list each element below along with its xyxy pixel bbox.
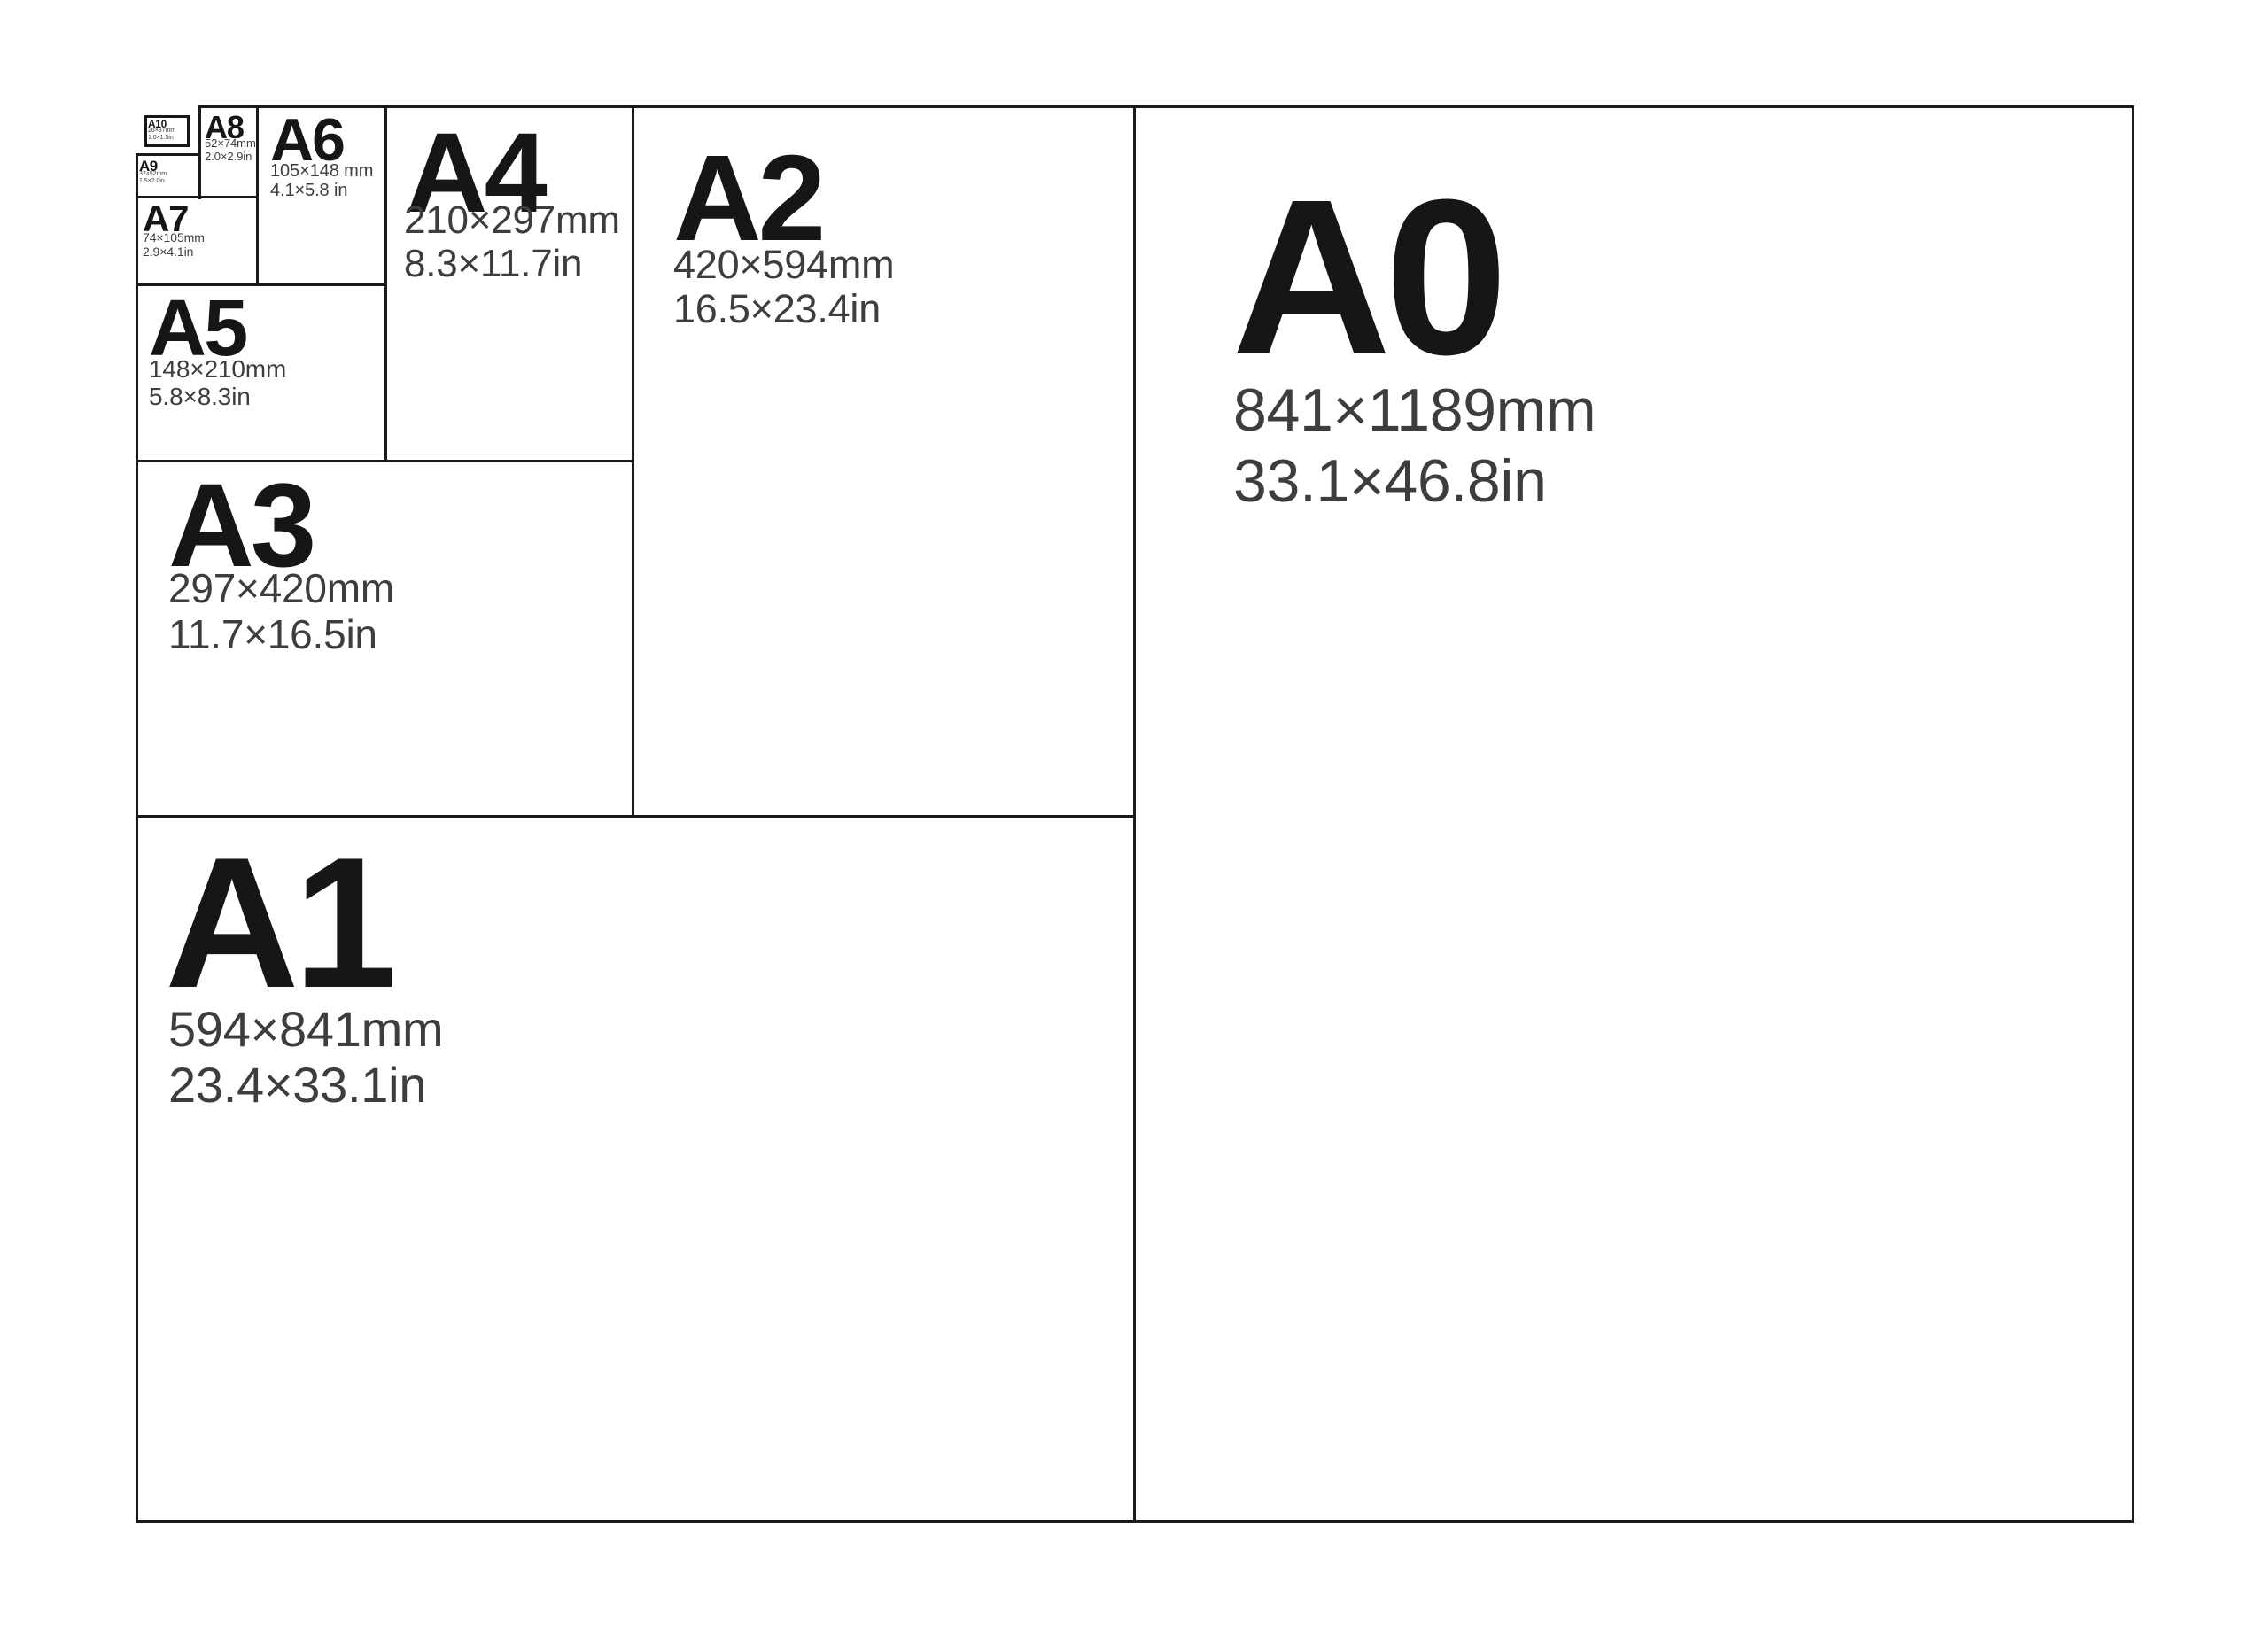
divider-a8a7-a6 <box>256 105 259 286</box>
a5-dimensions: 148×210mm 5.8×8.3in <box>149 355 286 411</box>
a7-dimensions-in: 2.9×4.1in <box>143 245 205 260</box>
a3-dimensions-mm: 297×420mm <box>168 566 394 612</box>
a10-dimensions: 26×37mm 1.0×1.5in <box>148 128 175 142</box>
outer-border-left <box>136 153 138 1523</box>
a4-dimensions-mm: 210×297mm <box>404 198 620 242</box>
a0-dimensions-in: 33.1×46.8in <box>1233 446 1596 517</box>
a0-dimensions: 841×1189mm 33.1×46.8in <box>1233 376 1596 516</box>
a1-dimensions: 594×841mm 23.4×33.1in <box>168 1002 443 1113</box>
a6-dimensions-mm: 105×148 mm <box>270 161 373 181</box>
a2-dimensions-in: 16.5×23.4in <box>673 287 894 331</box>
a0-size-name: A0 <box>1231 167 1502 388</box>
a7-dimensions-mm: 74×105mm <box>143 231 205 245</box>
a10-dimensions-in: 1.0×1.5in <box>148 135 175 142</box>
divider-a4a3-a2 <box>632 105 634 818</box>
a1-dimensions-in: 23.4×33.1in <box>168 1058 443 1114</box>
a5-dimensions-mm: 148×210mm <box>149 355 286 383</box>
a4-dimensions-in: 8.3×11.7in <box>404 242 620 285</box>
a0-dimensions-mm: 841×1189mm <box>1233 376 1596 446</box>
a3-dimensions-in: 11.7×16.5in <box>168 612 394 658</box>
a8-dimensions-in: 2.0×2.9in <box>205 151 256 164</box>
a9-top-edge <box>136 153 201 156</box>
a3-dimensions: 297×420mm 11.7×16.5in <box>168 566 394 657</box>
a6-dimensions-in: 4.1×5.8 in <box>270 181 373 200</box>
a8-dimensions: 52×74mm 2.0×2.9in <box>205 137 256 163</box>
a1-size-name: A1 <box>165 830 392 1016</box>
a9-dimensions-mm: 37×52mm <box>139 171 167 178</box>
a2-dimensions-mm: 420×594mm <box>673 243 894 287</box>
a2-dimensions: 420×594mm 16.5×23.4in <box>673 243 894 332</box>
a6-dimensions: 105×148 mm 4.1×5.8 in <box>270 161 373 201</box>
a4-dimensions: 210×297mm 8.3×11.7in <box>404 198 620 286</box>
a9-dimensions: 37×52mm 1.5×2.0in <box>139 171 167 185</box>
outer-border-top <box>198 105 2134 108</box>
a8-left-edge <box>198 105 201 199</box>
divider-a6a5-a4 <box>384 105 387 462</box>
paper-sizes-diagram: A0 841×1189mm 33.1×46.8in A1 594×841mm 2… <box>0 0 2268 1630</box>
a8-dimensions-mm: 52×74mm <box>205 137 256 151</box>
divider-a2a1-a0 <box>1133 105 1136 1523</box>
a1-dimensions-mm: 594×841mm <box>168 1002 443 1058</box>
a9-dimensions-in: 1.5×2.0in <box>139 178 167 185</box>
a10-dimensions-mm: 26×37mm <box>148 128 175 135</box>
a5-dimensions-in: 5.8×8.3in <box>149 383 286 410</box>
divider-a3a2-a1 <box>136 815 1136 818</box>
a7-dimensions: 74×105mm 2.9×4.1in <box>143 231 205 259</box>
outer-border-right <box>2132 105 2134 1523</box>
